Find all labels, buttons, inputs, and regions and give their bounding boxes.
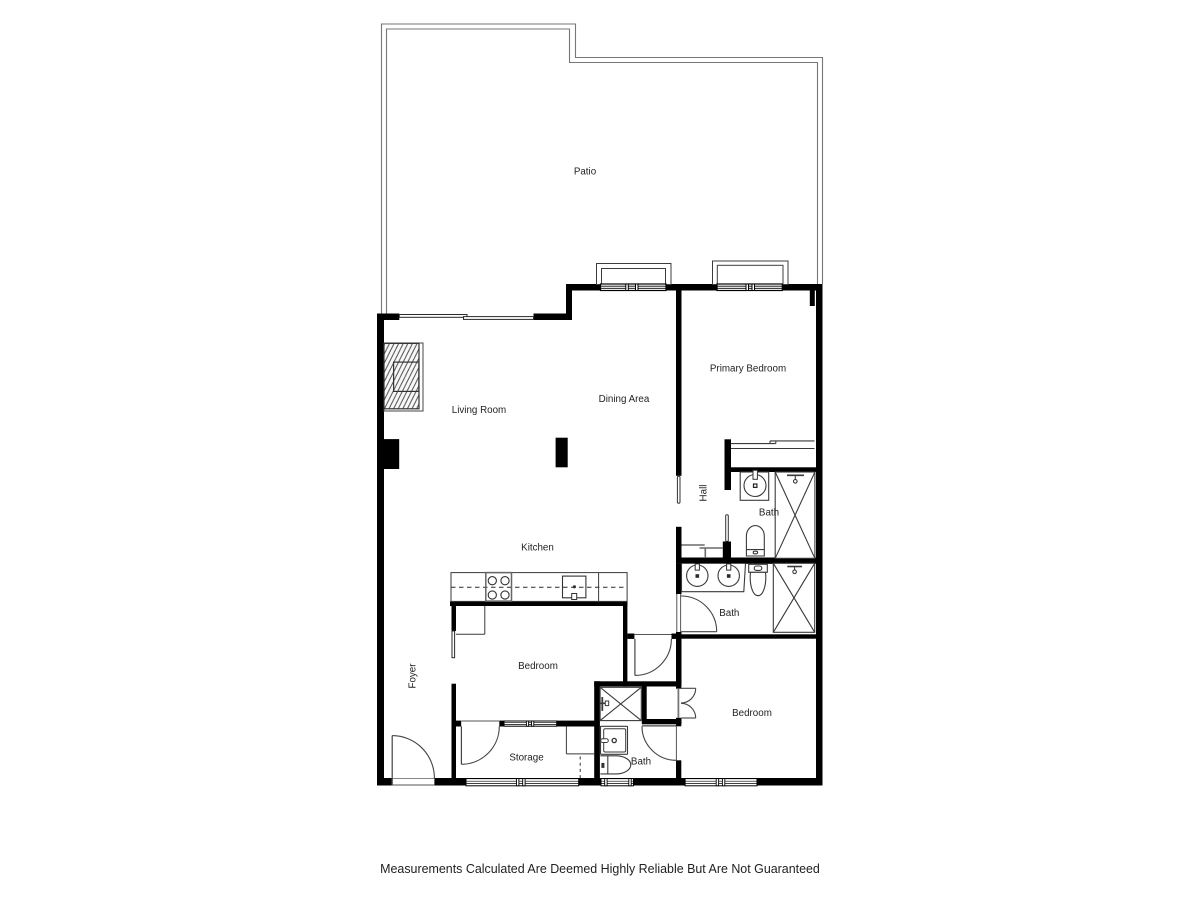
svg-text:Bath: Bath <box>719 608 739 619</box>
svg-text:Bath: Bath <box>759 508 779 519</box>
svg-text:Hall: Hall <box>699 485 710 502</box>
svg-text:Foyer: Foyer <box>408 663 419 689</box>
svg-text:Bedroom: Bedroom <box>732 708 772 719</box>
svg-text:Measurements Calculated Are De: Measurements Calculated Are Deemed Highl… <box>380 862 820 876</box>
svg-text:Bath: Bath <box>631 757 651 768</box>
svg-text:Primary Bedroom: Primary Bedroom <box>710 364 786 375</box>
svg-text:Patio: Patio <box>574 167 597 178</box>
svg-text:Dining Area: Dining Area <box>599 394 650 405</box>
svg-text:Living Room: Living Room <box>452 405 506 416</box>
svg-text:Bedroom: Bedroom <box>518 661 558 672</box>
svg-text:Storage: Storage <box>509 753 544 764</box>
svg-text:Kitchen: Kitchen <box>521 543 554 554</box>
